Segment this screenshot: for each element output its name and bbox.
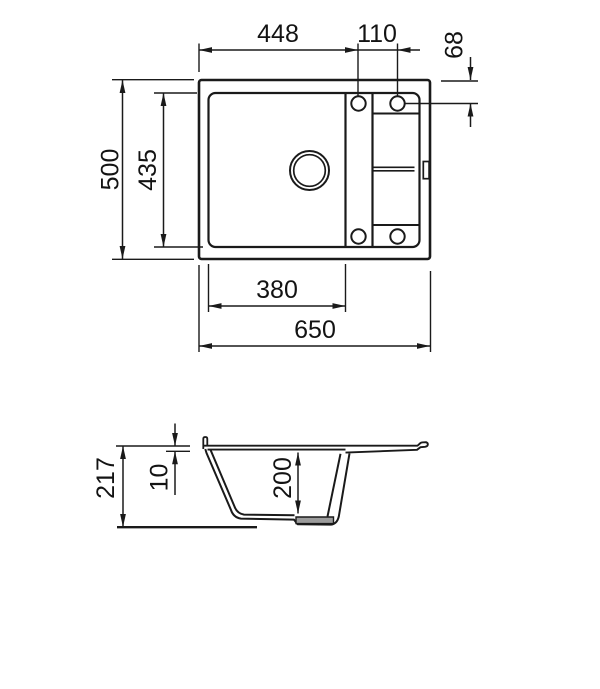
dim-380: 380: [209, 264, 346, 312]
dim-435: 435: [134, 93, 203, 247]
sink-dimension-drawing: 448 110 68 500 435: [0, 0, 600, 689]
section-bowl-inner-wall-right: [328, 454, 341, 517]
faucet-hole-bottom-right: [390, 229, 404, 243]
faucet-hole-top-left: [351, 96, 365, 110]
dim-448: 448: [199, 20, 358, 72]
drain-hole-inner: [294, 155, 326, 187]
extension-line: [358, 44, 398, 97]
dim-10-label: 10: [146, 464, 174, 492]
side-view: 217 10 200: [92, 424, 428, 528]
drain-hole-outer: [290, 151, 329, 190]
top-view: 448 110 68 500 435: [97, 20, 479, 352]
dim-380-label: 380: [256, 276, 298, 304]
dim-200: 200: [269, 453, 298, 514]
dim-200-label: 200: [269, 457, 297, 499]
dim-650: 650: [199, 265, 431, 352]
dim-650-label: 650: [294, 316, 336, 344]
drawing-page: 448 110 68 500 435: [0, 0, 600, 689]
dim-448-label: 448: [257, 20, 299, 48]
section-left-lip: [203, 437, 207, 449]
dim-10: 10: [146, 424, 191, 496]
overflow-slot: [423, 162, 429, 179]
section-back-rim-and-drainer: [204, 442, 428, 452]
section-drain-strip: [296, 517, 334, 524]
dim-68-label: 68: [441, 31, 469, 59]
sink-outer-edge: [199, 80, 430, 259]
dim-110-label: 110: [357, 20, 397, 48]
dim-500-label: 500: [97, 149, 125, 191]
dim-110: 110: [357, 20, 420, 96]
dim-435-label: 435: [134, 149, 162, 191]
drainer-groove: [373, 167, 415, 171]
faucet-hole-top-right: [390, 96, 404, 110]
faucet-hole-bottom-left: [351, 229, 365, 243]
dim-217-label: 217: [92, 457, 120, 499]
